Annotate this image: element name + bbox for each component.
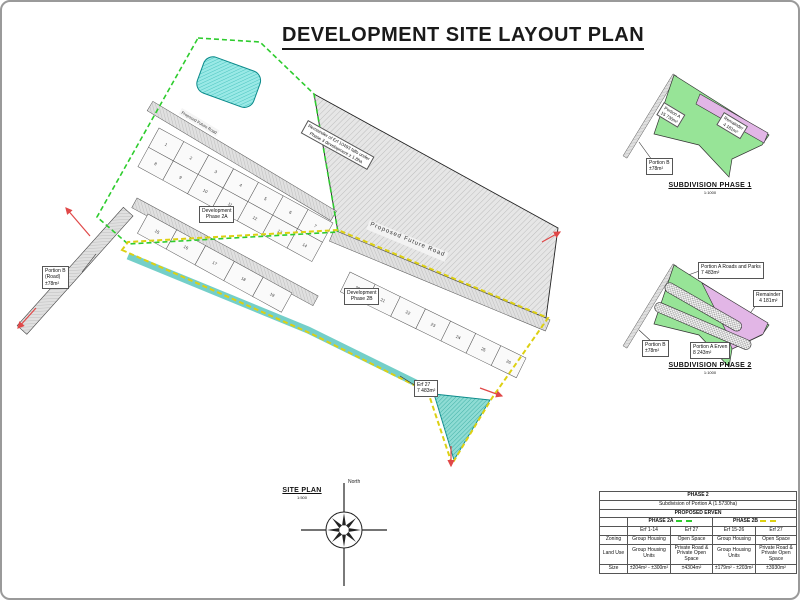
table-cell: PHASE 2 — [600, 492, 797, 501]
table-row: Erf 1-14 Erf 27 Erf 15-26 Erf 27 — [600, 527, 797, 536]
table-cell: Group Housing Units — [628, 544, 671, 564]
table-cell: Subdivision of Portion A (1.5730ha) — [600, 500, 797, 509]
table-cell: Zoning — [600, 535, 628, 544]
table-row: Land Use Group Housing Units Private Roa… — [600, 544, 797, 564]
table-cell: PHASE 2B — [713, 518, 797, 527]
table-cell: PROPOSED ERVEN — [600, 509, 797, 518]
table-cell: Land Use — [600, 544, 628, 564]
table-cell: ±4304m² — [671, 564, 713, 573]
table-cell: Group Housing Units — [713, 544, 756, 564]
sheet: DEVELOPMENT SITE LAYOUT PLAN — [0, 0, 800, 600]
table-cell: PHASE 2A — [628, 518, 713, 527]
phase-2a-swatch — [676, 520, 692, 522]
pond — [194, 54, 263, 110]
table-cell: Open Space — [756, 535, 797, 544]
table-cell: ±3930m² — [756, 564, 797, 573]
p2-erven-label: Portion A Erven 8 243m² — [690, 342, 730, 359]
table-cell: ±204m² - ±300m² — [628, 564, 671, 573]
development-phase-2b-label: Development Phase 2B — [344, 288, 379, 305]
table-row: Zoning Group Housing Open Space Group Ho… — [600, 535, 797, 544]
table-cell: Erf 27 — [756, 527, 797, 536]
phase2-caption: SUBDIVISION PHASE 2 1:1000 — [650, 362, 770, 375]
open-space-triangle — [434, 394, 490, 460]
schedule-table: PHASE 2 Subdivision of Portion A (1.5730… — [599, 491, 797, 574]
table-row: Subdivision of Portion A (1.5730ha) — [600, 500, 797, 509]
table-row: PHASE 2A PHASE 2B — [600, 518, 797, 527]
north-label: North — [348, 479, 360, 485]
table-cell: Group Housing — [713, 535, 756, 544]
phase-2b-swatch — [760, 520, 776, 522]
table-cell: Erf 27 — [671, 527, 713, 536]
table-cell: Erf 15-26 — [713, 527, 756, 536]
site-plan-caption: SITE PLAN 1:500 — [272, 487, 332, 500]
table-cell: Erf 1-14 — [628, 527, 671, 536]
table-cell — [600, 527, 628, 536]
table-row: Size ±204m² - ±300m² ±4304m² ±179m² - ±2… — [600, 564, 797, 573]
portion-b-road-label: Portion B (Road) ±78m² — [42, 266, 69, 289]
p2-roads-parks-label: Portion A Roads and Parks 7 483m² — [698, 262, 764, 279]
p2-portion-b-label: Portion B ±78m² — [642, 340, 669, 357]
phase1-caption: SUBDIVISION PHASE 1 1:1000 — [650, 182, 770, 195]
table-row: PROPOSED ERVEN — [600, 509, 797, 518]
table-cell: Private Road & Private Open Space — [756, 544, 797, 564]
table-row: PHASE 2 — [600, 492, 797, 501]
portion-b-road — [17, 207, 133, 334]
table-cell — [600, 518, 628, 527]
erf-27-label: Erf 27 7 483m² — [414, 380, 438, 397]
p1-portion-b-label: Portion B ±78m² — [646, 158, 673, 175]
page-title: DEVELOPMENT SITE LAYOUT PLAN — [282, 24, 644, 50]
table-cell: ±179m² - ±203m² — [713, 564, 756, 573]
development-phase-2a-label: Development Phase 2A — [199, 206, 234, 223]
table-cell: Private Road & Private Open Space — [671, 544, 713, 564]
p2-remainder-label: Remainder 4 181m² — [753, 290, 783, 307]
table-cell: Group Housing — [628, 535, 671, 544]
table-cell: Size — [600, 564, 628, 573]
table-cell: Open Space — [671, 535, 713, 544]
